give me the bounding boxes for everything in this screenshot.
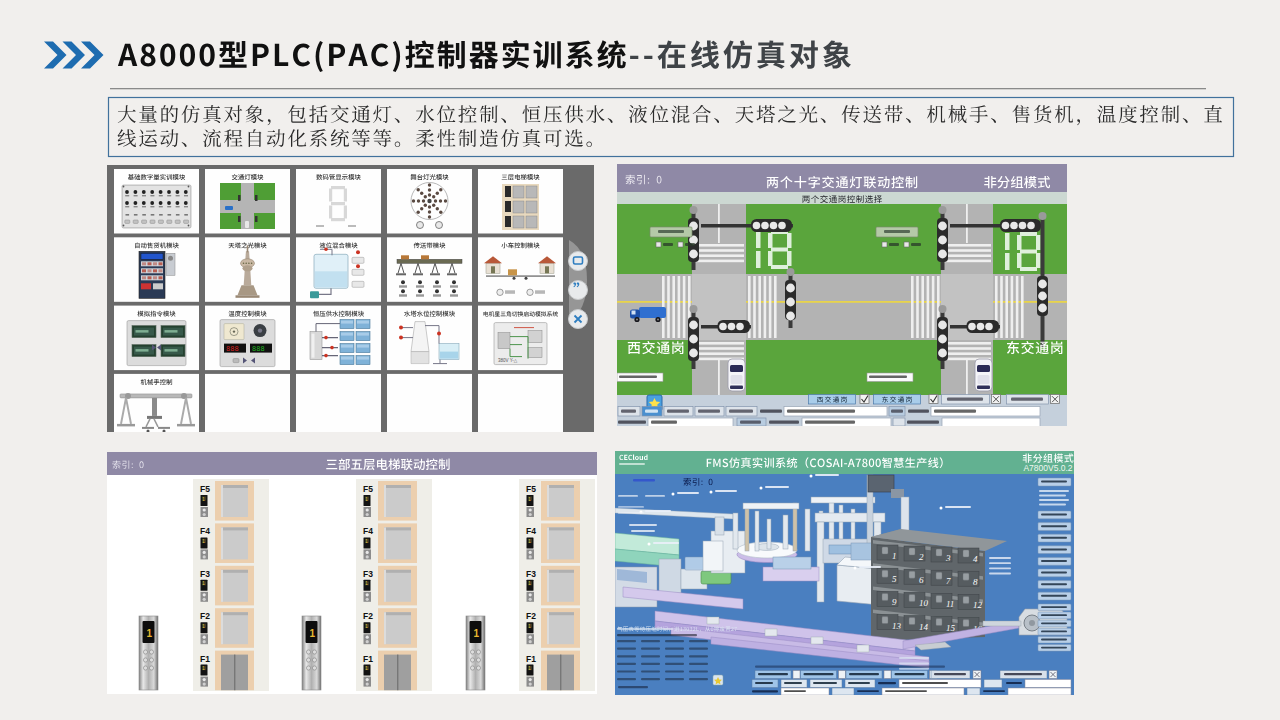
svg-text:9: 9: [892, 597, 897, 607]
svg-text:F5: F5: [526, 484, 536, 494]
svg-text:4: 4: [973, 554, 978, 564]
svg-text:F3: F3: [200, 569, 210, 579]
svg-text:6: 6: [919, 575, 924, 585]
svg-text:1: 1: [310, 628, 316, 639]
svg-text:F1: F1: [200, 654, 210, 664]
svg-text:F2: F2: [363, 611, 373, 621]
svg-text:11: 11: [946, 599, 954, 609]
svg-text:F5: F5: [363, 484, 373, 494]
svg-text:888: 888: [252, 345, 265, 353]
svg-text:F3: F3: [526, 569, 536, 579]
svg-text:1: 1: [147, 628, 153, 639]
svg-text:3: 3: [945, 553, 951, 563]
svg-text:8: 8: [973, 577, 978, 587]
svg-text:14: 14: [919, 622, 929, 632]
svg-text:F5: F5: [200, 484, 210, 494]
svg-text:F4: F4: [363, 526, 373, 536]
svg-text:2: 2: [919, 552, 924, 562]
svg-text:380V Y-△: 380V Y-△: [498, 358, 518, 363]
svg-text:F2: F2: [526, 611, 536, 621]
svg-text:888: 888: [226, 345, 239, 353]
svg-text:10: 10: [919, 598, 929, 608]
svg-text:15: 15: [946, 623, 956, 633]
svg-text:F1: F1: [526, 654, 536, 664]
svg-text:F2: F2: [200, 611, 210, 621]
svg-text:A7800V5.0.2: A7800V5.0.2: [1023, 463, 1072, 473]
svg-text:13: 13: [892, 621, 902, 631]
svg-text:F4: F4: [526, 526, 536, 536]
svg-text:5: 5: [892, 574, 897, 584]
svg-text:F4: F4: [200, 526, 210, 536]
svg-text:7: 7: [946, 576, 951, 586]
svg-text:12: 12: [973, 600, 983, 610]
svg-text:F1: F1: [363, 654, 373, 664]
svg-text:1: 1: [892, 551, 897, 561]
svg-text:1: 1: [474, 628, 480, 639]
svg-text:F3: F3: [363, 569, 373, 579]
